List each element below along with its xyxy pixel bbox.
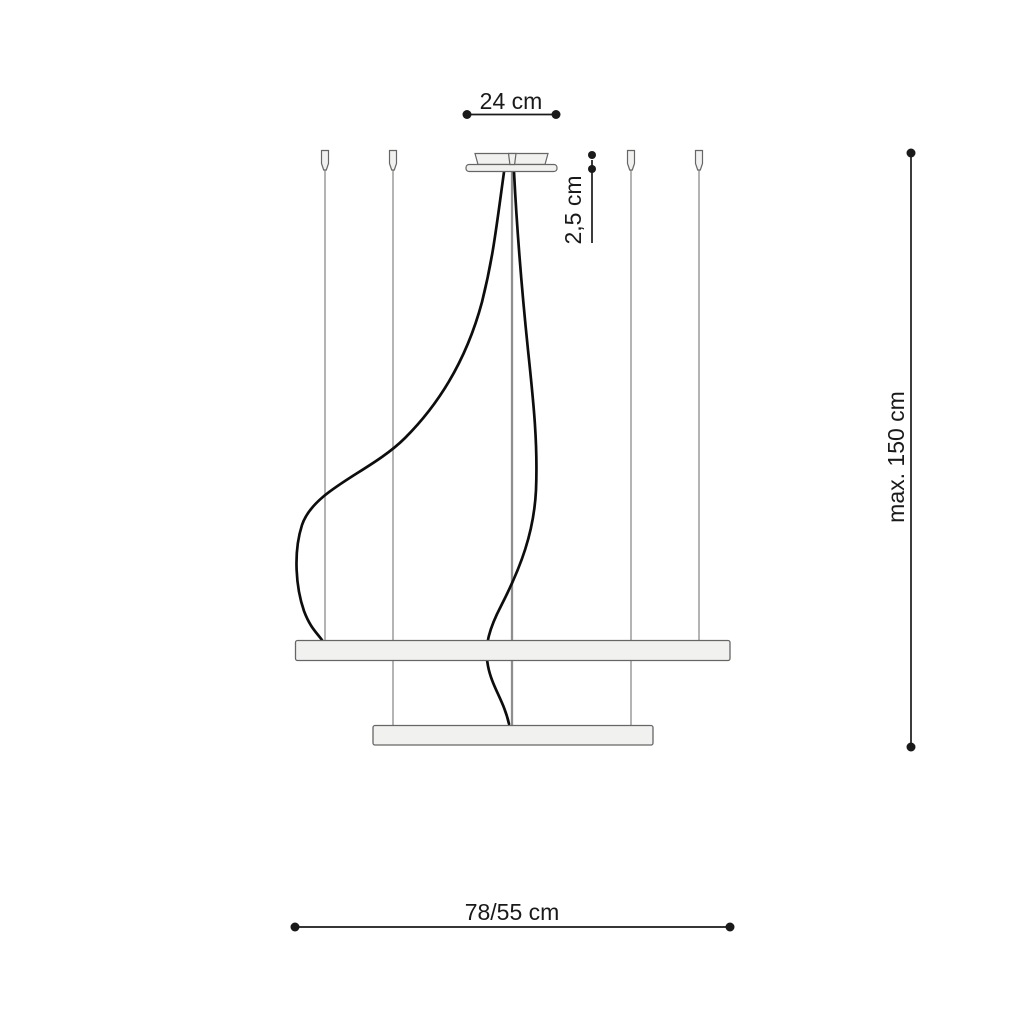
technical-drawing-canvas: 24 cm 2,5 cm max. 150 cm 78/55 cm [0,0,1024,1024]
dim-endpoint-dot [463,110,472,119]
pendant-lamp-dimension-diagram: 24 cm 2,5 cm max. 150 cm 78/55 cm [0,0,1024,1024]
wire-fitting-icon [696,151,703,171]
dim-endpoint-dot [907,743,916,752]
upper-ring [296,641,731,661]
dimension-canopy-width: 24 cm [463,88,561,119]
power-cable-left [296,172,504,640]
dimension-canopy-height: 2,5 cm [560,151,596,245]
dimension-ring-diameters: 78/55 cm [291,899,735,932]
dimension-suspension-height: max. 150 cm [883,149,916,752]
wire-fitting-icon [321,151,328,171]
canopy-width-label: 24 cm [480,88,543,114]
canopy-height-label: 2,5 cm [560,175,586,244]
canopy [466,154,557,172]
dim-endpoint-dot [907,149,916,158]
dim-endpoint-dot [552,110,561,119]
canopy-center-stem [509,154,517,165]
suspension-height-label: max. 150 cm [883,391,909,523]
wire-fitting-icon [389,151,396,171]
wire-fitting-icon [628,151,635,171]
ring-diameters-label: 78/55 cm [465,899,560,925]
dim-endpoint-dot [291,923,300,932]
lower-ring [373,726,653,746]
dim-endpoint-dot [726,923,735,932]
dim-endpoint-dot [588,151,596,159]
canopy-flange [466,165,557,172]
